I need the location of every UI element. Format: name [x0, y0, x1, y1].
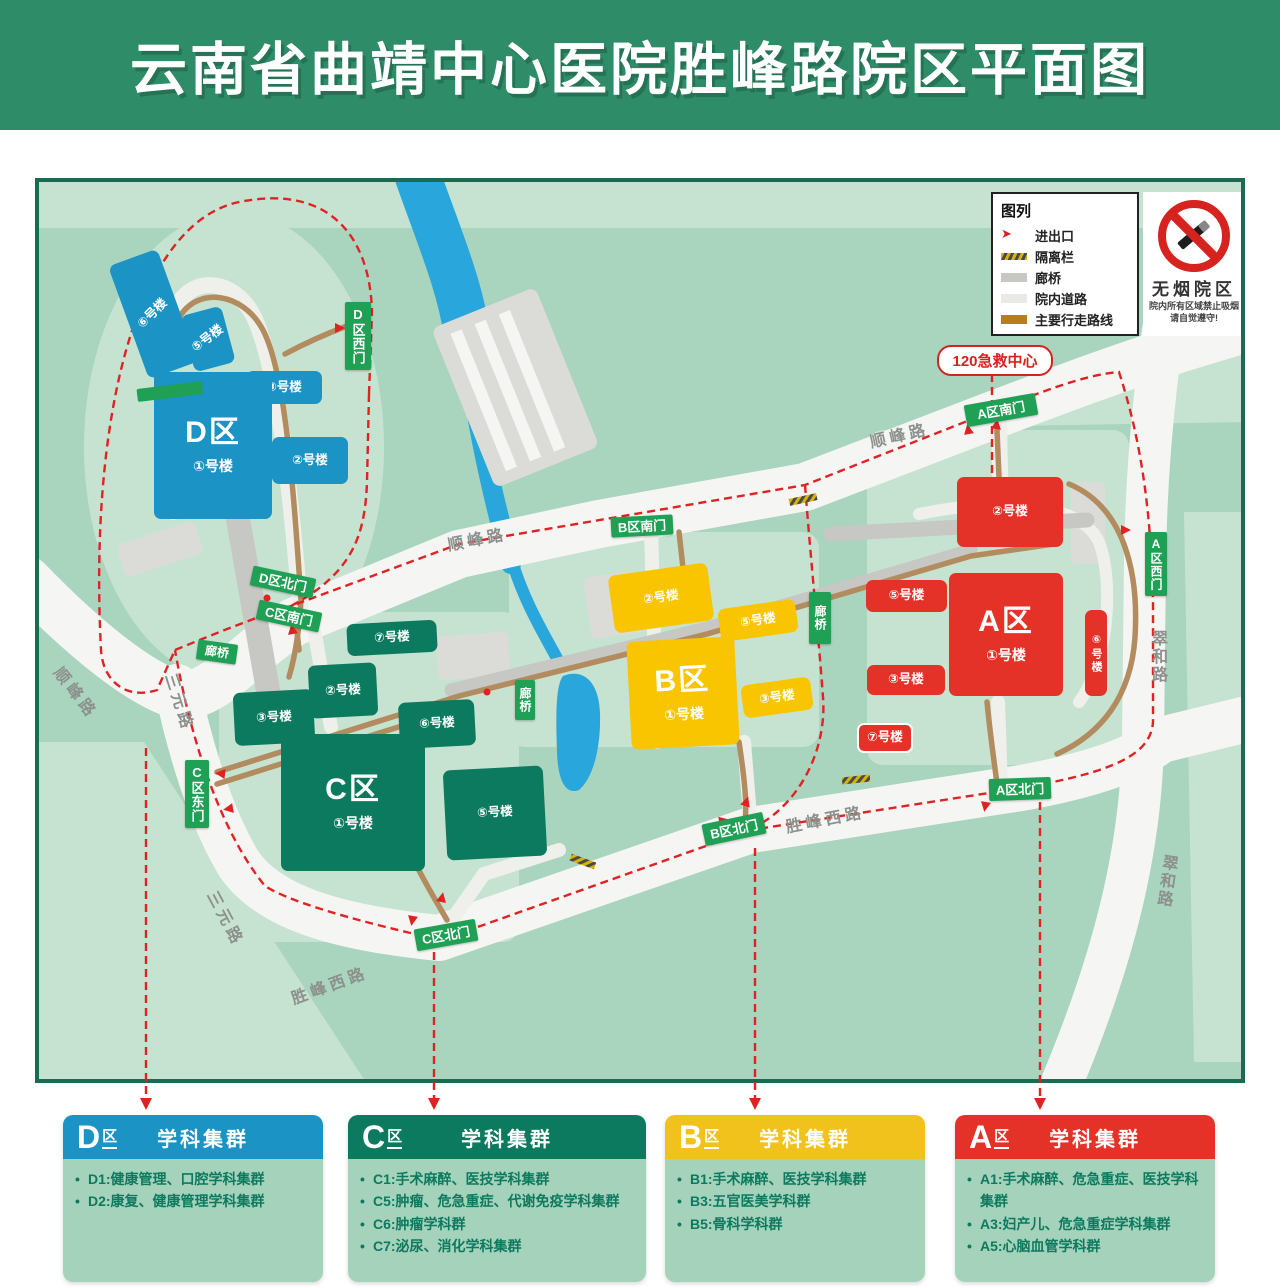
zone-b-label: B区 — [654, 662, 711, 698]
panel-d-header: D区 学科集群 — [63, 1115, 323, 1159]
panel-c-items: C1:手术麻醉、医技学科集群C5:肿瘤、危急重症、代谢免疫学科集群C6:肿瘤学科… — [348, 1159, 646, 1282]
panel-b-header: B区 学科集群 — [665, 1115, 925, 1159]
building-c1-main: C区 ①号楼 — [281, 734, 425, 871]
zone-d-label: D区 — [185, 416, 241, 449]
panel-item: C6:肿瘤学科群 — [360, 1213, 634, 1235]
panel-item: D1:健康管理、口腔学科集群 — [75, 1168, 311, 1190]
panel-zone-a: A区 学科集群 A1:手术麻醉、危急重症、医技学科集群A3:妇产儿、危急重症学科… — [955, 1115, 1215, 1282]
no-smoking-line2: 请自觉遵守! — [1143, 312, 1245, 324]
corridor-sign-2: 廊桥 — [515, 680, 535, 720]
corridor-bar-icon — [1001, 273, 1027, 282]
gate-d-west: D区西门 — [345, 302, 371, 370]
panel-zone-b: B区 学科集群 B1:手术麻醉、医技学科集群B3:五官医美学科群B5:骨科学科群 — [665, 1115, 925, 1282]
panel-zone-c: C区 学科集群 C1:手术麻醉、医技学科集群C5:肿瘤、危急重症、代谢免疫学科集… — [348, 1115, 646, 1282]
legend-row-corridor: 廊桥 — [1001, 267, 1129, 288]
no-smoking-title: 无烟院区 — [1143, 275, 1245, 300]
page-title: 云南省曲靖中心医院胜峰路院区平面图 — [130, 24, 1150, 106]
building-b1-main: B区 ①号楼 — [626, 636, 740, 750]
panel-a-items: A1:手术麻醉、危急重症、医技学科集群A3:妇产儿、危急重症学科集群A5:心脑血… — [955, 1159, 1215, 1282]
zone-c-label: C区 — [325, 773, 381, 806]
campus-map: ⑥号楼 ⑤号楼 ③号楼 D区 ①号楼 ②号楼 ⑦号楼 ②号楼 ③号楼 ⑥号楼 C… — [35, 178, 1245, 1083]
building-a3: ③号楼 — [867, 665, 945, 695]
building-a1-main: A区 ①号楼 — [949, 573, 1063, 696]
building-a7: ⑦号楼 — [857, 723, 913, 753]
panel-item: A3:妇产儿、危急重症学科集群 — [967, 1213, 1203, 1235]
road-bar-icon — [1001, 294, 1027, 303]
gate-a-north: A区北门 — [989, 777, 1052, 801]
panel-item: A1:手术麻醉、危急重症、医技学科集群 — [967, 1168, 1203, 1213]
panel-zone-d: D区 学科集群 D1:健康管理、口腔学科集群D2:康复、健康管理学科集群 — [63, 1115, 323, 1282]
panel-d-items: D1:健康管理、口腔学科集群D2:康复、健康管理学科集群 — [63, 1159, 323, 1282]
gate-c-east: C区东门 — [185, 760, 209, 828]
route-bar-icon — [1001, 315, 1027, 324]
barrier-icon — [1001, 253, 1027, 260]
legend-row-road: 院内道路 — [1001, 288, 1129, 309]
no-smoking-card: 无烟院区 院内所有区域禁止吸烟 请自觉遵守! — [1143, 192, 1245, 336]
panel-item: B5:骨科学科群 — [677, 1213, 913, 1235]
title-banner: 云南省曲靖中心医院胜峰路院区平面图 — [0, 0, 1280, 130]
panel-item: C7:泌尿、消化学科集群 — [360, 1235, 634, 1257]
panel-item: D2:康复、健康管理学科集群 — [75, 1190, 311, 1212]
panel-item: B1:手术麻醉、医技学科集群 — [677, 1168, 913, 1190]
panel-a-header: A区 学科集群 — [955, 1115, 1215, 1159]
zone-a-label: A区 — [978, 605, 1034, 638]
building-a2: ②号楼 — [957, 477, 1063, 547]
panel-item: A5:心脑血管学科群 — [967, 1235, 1203, 1257]
road-label-cuihe-1: 翠和路 — [1145, 630, 1169, 684]
building-a5: ⑤号楼 — [866, 580, 947, 612]
emergency-120-label: 120急救中心 — [937, 345, 1053, 376]
panel-item: C1:手术麻醉、医技学科集群 — [360, 1168, 634, 1190]
no-smoking-line1: 院内所有区域禁止吸烟 — [1143, 300, 1245, 312]
building-c5: ⑤号楼 — [443, 765, 548, 860]
panel-b-items: B1:手术麻醉、医技学科集群B3:五官医美学科群B5:骨科学科群 — [665, 1159, 925, 1282]
no-smoking-icon — [1158, 200, 1230, 272]
panel-item: B3:五官医美学科群 — [677, 1190, 913, 1212]
map-legend: 图列 ➤ 进出口 隔离栏 廊桥 院内道路 主要行走路线 — [991, 192, 1139, 336]
building-d2: ②号楼 — [272, 437, 348, 484]
panel-item: C5:肿瘤、危急重症、代谢免疫学科集群 — [360, 1190, 634, 1212]
legend-row-route: 主要行走路线 — [1001, 309, 1129, 330]
corridor-sign-3: 廊桥 — [809, 592, 831, 644]
entrance-arrow-icon: ➤ — [1001, 229, 1027, 242]
building-a6: ⑥号楼 — [1085, 610, 1107, 696]
legend-row-entrance: ➤ 进出口 — [1001, 225, 1129, 246]
legend-row-barrier: 隔离栏 — [1001, 246, 1129, 267]
building-c2: ②号楼 — [308, 662, 379, 718]
gate-b-south: B区南门 — [611, 514, 674, 537]
panel-c-header: C区 学科集群 — [348, 1115, 646, 1159]
gate-a-west: A区西门 — [1145, 532, 1167, 596]
legend-title: 图列 — [1001, 200, 1129, 221]
page: { "header": {"title": "云南省曲靖中心医院胜峰路院区平面图… — [0, 0, 1280, 1287]
pond — [556, 674, 600, 791]
building-c7: ⑦号楼 — [346, 620, 438, 657]
